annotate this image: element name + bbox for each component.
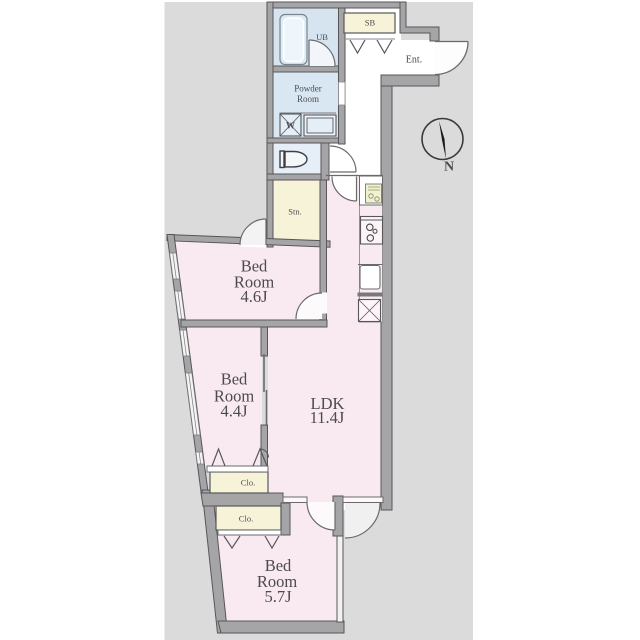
svg-text:5.7J: 5.7J — [264, 587, 292, 606]
svg-text:N: N — [444, 160, 454, 175]
svg-text:SB: SB — [365, 18, 376, 28]
svg-text:4.4J: 4.4J — [220, 402, 248, 421]
svg-text:11.4J: 11.4J — [310, 408, 345, 427]
svg-text:Clo.: Clo. — [239, 514, 253, 524]
svg-text:Stn.: Stn. — [288, 207, 301, 217]
svg-text:4.6J: 4.6J — [240, 287, 268, 306]
svg-text:Ent.: Ent. — [406, 55, 422, 66]
svg-text:Powder: Powder — [294, 84, 322, 94]
svg-text:UB: UB — [316, 32, 328, 42]
svg-text:Clo.: Clo. — [241, 478, 255, 488]
svg-text:W: W — [286, 121, 295, 131]
svg-text:Room: Room — [297, 94, 319, 104]
